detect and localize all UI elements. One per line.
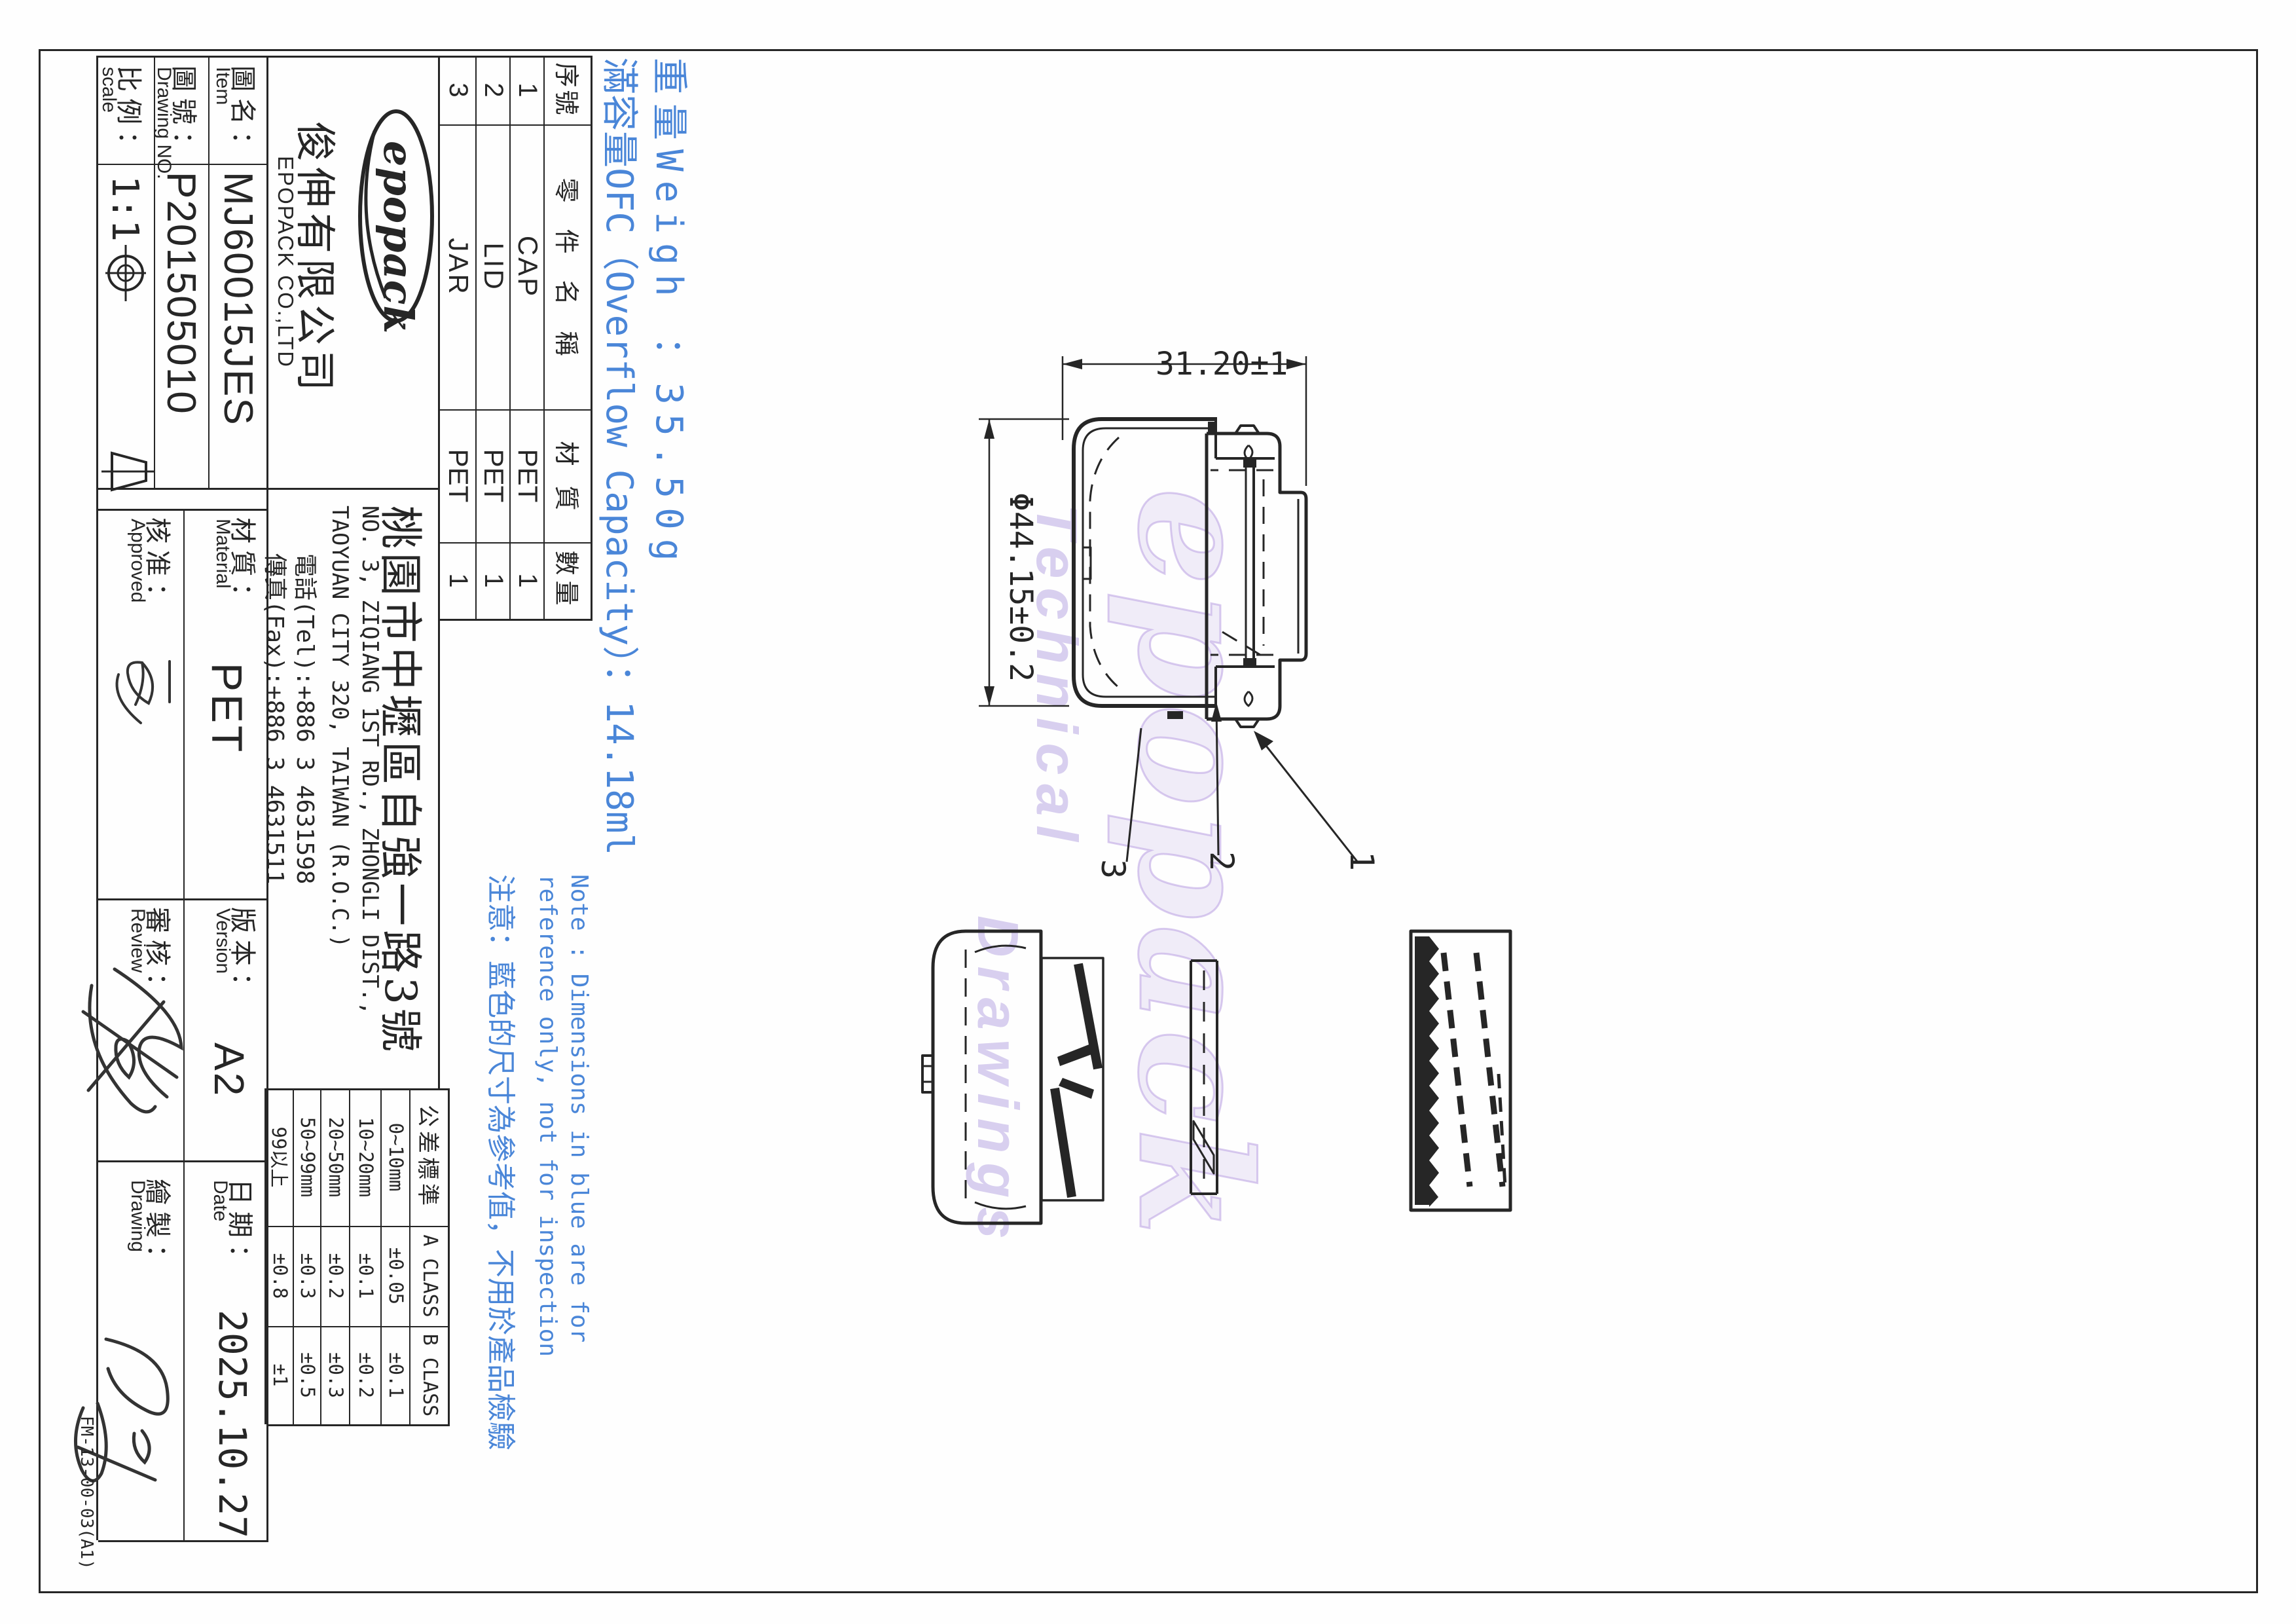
callout-2: 2 (1203, 851, 1241, 871)
drawing-sheet: epopack Technical Drawings 重量Weigh ：35.5… (0, 0, 2296, 1624)
dimension-diameter: Φ44.15±0.2 (1002, 492, 1039, 682)
dimension-height: 31.20±1 (1156, 346, 1288, 382)
callout-3: 3 (1094, 859, 1132, 879)
technical-views (0, 0, 2296, 1624)
callout-1: 1 (1343, 851, 1381, 871)
